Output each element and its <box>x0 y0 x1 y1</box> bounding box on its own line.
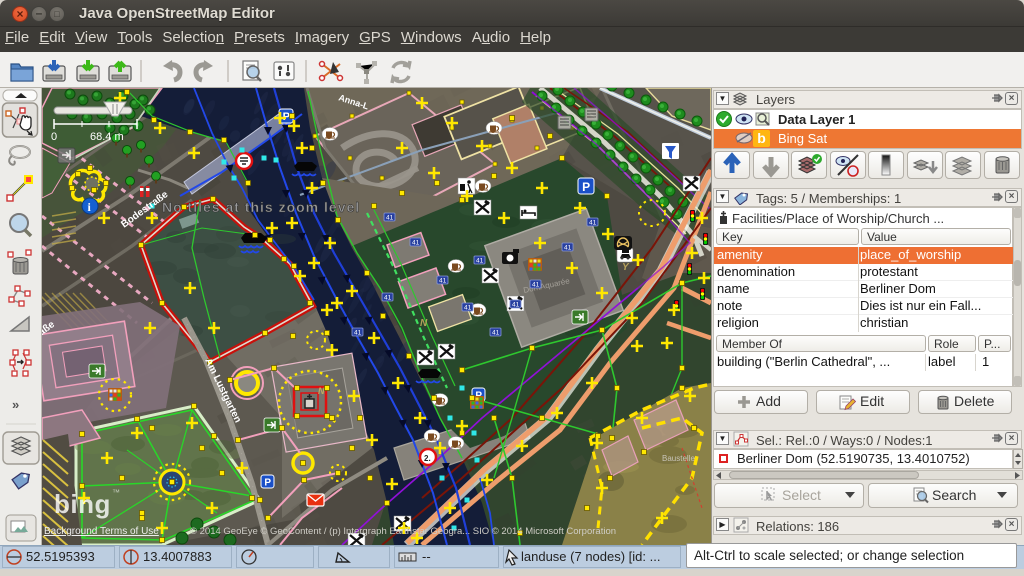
svg-text:41: 41 <box>476 258 484 265</box>
svg-text:2.: 2. <box>424 454 431 463</box>
svg-text:41: 41 <box>564 245 572 252</box>
svg-text:N: N <box>420 318 428 329</box>
svg-text:bing: bing <box>54 489 111 519</box>
svg-text:41: 41 <box>354 330 362 337</box>
svg-text:41: 41 <box>464 305 472 312</box>
svg-text:41: 41 <box>412 240 420 247</box>
svg-text:™: ™ <box>112 488 120 497</box>
svg-text:P: P <box>582 180 590 194</box>
svg-text:No tiles at this zoom level: No tiles at this zoom level <box>162 199 360 215</box>
svg-text:41: 41 <box>384 295 392 302</box>
svg-text:Background Terms of Use: Background Terms of Use <box>44 526 159 537</box>
svg-text:Baustelle: Baustelle <box>662 454 695 463</box>
svg-text:»: » <box>12 397 19 412</box>
svg-text:41: 41 <box>512 302 520 309</box>
svg-text:41: 41 <box>492 330 500 337</box>
svg-text:© 2014 GeoEye © GeoContent / (: © 2014 GeoEye © GeoContent / (p) Intergr… <box>190 526 616 537</box>
svg-text:41: 41 <box>589 220 597 227</box>
svg-text:41: 41 <box>386 215 394 222</box>
svg-text:0: 0 <box>51 131 57 143</box>
svg-text:41: 41 <box>532 282 540 289</box>
svg-text:N: N <box>318 386 325 396</box>
svg-text:68.4 m: 68.4 m <box>90 131 124 143</box>
svg-text:P: P <box>264 477 271 488</box>
svg-text:41: 41 <box>439 278 447 285</box>
